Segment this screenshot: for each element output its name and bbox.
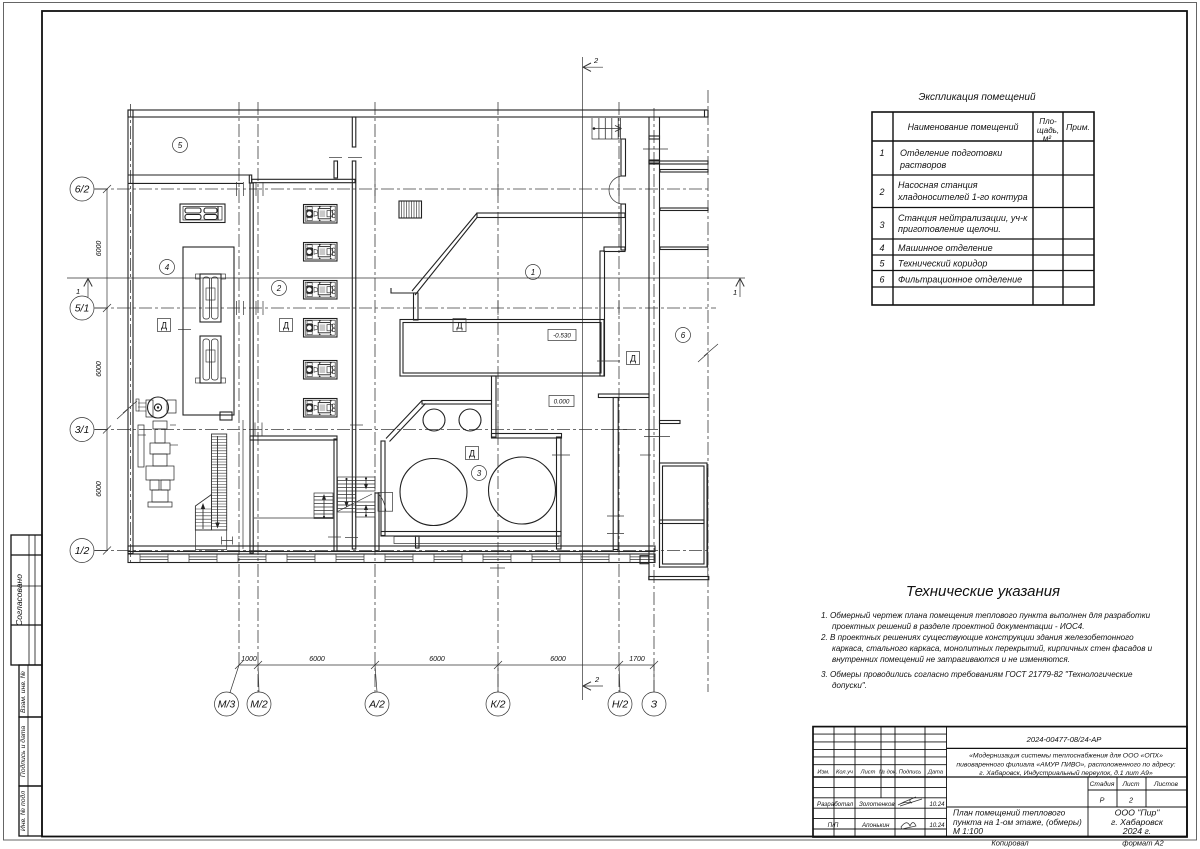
svg-text:Отделение подготовки: Отделение подготовки <box>900 148 1002 158</box>
svg-text:6000: 6000 <box>96 361 103 377</box>
svg-text:2. В проектных решениях сущест: 2. В проектных решениях существующие кон… <box>820 633 1134 642</box>
svg-text:М/3: М/3 <box>218 699 236 711</box>
svg-text:Согласовано: Согласовано <box>14 574 24 626</box>
svg-text:Лист: Лист <box>860 770 876 776</box>
svg-text:6000: 6000 <box>96 481 103 497</box>
svg-text:3/1: 3/1 <box>75 424 90 436</box>
svg-text:Листов: Листов <box>1153 781 1179 788</box>
svg-text:М 1:100: М 1:100 <box>953 826 983 836</box>
svg-text:каркаса, стального каркаса, мо: каркаса, стального каркаса, монолитных п… <box>832 644 1153 653</box>
svg-text:3: 3 <box>477 469 482 478</box>
svg-text:Д: Д <box>283 321 289 331</box>
svg-text:2024 г.: 2024 г. <box>1122 826 1151 836</box>
svg-text:6000: 6000 <box>550 656 566 663</box>
svg-text:10.24: 10.24 <box>929 802 945 808</box>
svg-text:Разработал: Разработал <box>817 801 854 808</box>
svg-text:1: 1 <box>733 288 737 297</box>
svg-text:Стадия: Стадия <box>1090 780 1115 788</box>
svg-text:Золотенков: Золотенков <box>859 801 895 808</box>
svg-text:«Модернизация системы теплосна: «Модернизация системы теплоснабжения для… <box>969 752 1163 760</box>
svg-text:М/2: М/2 <box>250 699 268 711</box>
svg-text:-0.530: -0.530 <box>553 333 571 340</box>
svg-text:А/2: А/2 <box>368 699 385 711</box>
svg-text:Наименование помещений: Наименование помещений <box>908 122 1019 132</box>
svg-text:Д: Д <box>469 449 475 459</box>
svg-text:6000: 6000 <box>429 656 445 663</box>
svg-text:Р: Р <box>1100 796 1105 805</box>
svg-text:пивоваренного филиала «АМУР ПИ: пивоваренного филиала «АМУР ПИВО», распо… <box>956 761 1175 769</box>
svg-text:5: 5 <box>178 141 183 150</box>
svg-text:0.000: 0.000 <box>554 399 570 406</box>
svg-text:План помещений теплового: План помещений теплового <box>953 808 1066 818</box>
svg-text:проектных решений в разделе пр: проектных решений в разделе проектной до… <box>832 622 1085 631</box>
svg-text:Дата: Дата <box>927 770 943 776</box>
svg-text:6000: 6000 <box>96 241 103 257</box>
svg-text:Д: Д <box>456 321 462 331</box>
svg-text:Апонькин: Апонькин <box>861 822 890 829</box>
svg-text:Кол.уч: Кол.уч <box>836 770 853 776</box>
svg-text:3. Обмеры проводились согласно: 3. Обмеры проводились согласно требовани… <box>821 670 1133 679</box>
svg-text:Технический коридор: Технический коридор <box>898 259 987 269</box>
svg-text:растворов: растворов <box>899 160 947 170</box>
svg-text:ООО "Пир": ООО "Пир" <box>1115 808 1161 818</box>
svg-text:1: 1 <box>879 148 884 158</box>
svg-text:4: 4 <box>165 263 170 272</box>
svg-text:3: 3 <box>879 220 884 230</box>
svg-text:6: 6 <box>879 275 884 285</box>
svg-text:хладоносителей 1-го контура: хладоносителей 1-го контура <box>897 192 1028 202</box>
svg-text:Станция нейтрализации, уч-к: Станция нейтрализации, уч-к <box>898 213 1028 223</box>
svg-text:1700: 1700 <box>629 656 645 663</box>
svg-text:Подпись и дата: Подпись и дата <box>19 726 27 778</box>
svg-text:1. Обмерный чертеж плана помещ: 1. Обмерный чертеж плана помещения тепло… <box>821 611 1151 620</box>
svg-text:П/П: П/П <box>828 822 839 829</box>
svg-text:формат А2: формат А2 <box>1122 839 1164 848</box>
svg-text:Насосная станция: Насосная станция <box>898 180 978 190</box>
svg-text:1: 1 <box>531 268 535 277</box>
svg-text:З: З <box>651 699 658 711</box>
svg-text:4: 4 <box>879 243 884 253</box>
svg-text:2: 2 <box>878 187 884 197</box>
svg-text:Технические указания: Технические указания <box>906 583 1060 600</box>
svg-text:№ док.: № док. <box>879 770 897 776</box>
svg-text:2: 2 <box>1128 796 1133 805</box>
svg-text:Копировал: Копировал <box>991 839 1029 848</box>
svg-text:6000: 6000 <box>309 656 325 663</box>
svg-text:Лист: Лист <box>1122 781 1140 788</box>
svg-text:м²: м² <box>1043 134 1051 143</box>
svg-text:К/2: К/2 <box>491 699 506 711</box>
svg-text:Изм.: Изм. <box>817 770 829 776</box>
svg-text:10.24: 10.24 <box>929 823 945 829</box>
svg-text:г. Хабаровск, Индустриальный п: г. Хабаровск, Индустриальный переулок, д… <box>979 769 1153 777</box>
svg-text:5/1: 5/1 <box>75 303 90 315</box>
svg-text:допуски".: допуски". <box>832 681 867 690</box>
svg-text:Прим.: Прим. <box>1066 122 1090 132</box>
svg-text:1000: 1000 <box>241 656 257 663</box>
svg-text:Инв. № подл: Инв. № подл <box>19 791 27 831</box>
svg-text:Д: Д <box>630 354 636 364</box>
svg-text:Машинное отделение: Машинное отделение <box>898 243 993 253</box>
svg-text:6: 6 <box>681 331 686 340</box>
svg-text:2024-00477-08/24-АР: 2024-00477-08/24-АР <box>1026 735 1103 744</box>
svg-text:2: 2 <box>594 675 600 684</box>
svg-text:1: 1 <box>76 287 80 296</box>
svg-text:1/2: 1/2 <box>75 545 90 557</box>
svg-text:внутренних помещений не затраг: внутренних помещений не затрагиваются и … <box>832 655 1070 664</box>
svg-text:Экспликация помещений: Экспликация помещений <box>918 92 1036 103</box>
svg-text:приготовление щелочи.: приготовление щелочи. <box>898 224 1001 234</box>
svg-text:Подпись: Подпись <box>899 770 922 776</box>
svg-text:Взам. инв. №: Взам. инв. № <box>20 671 27 713</box>
svg-text:Пло-: Пло- <box>1039 117 1057 126</box>
svg-text:Д: Д <box>161 321 167 331</box>
svg-text:6/2: 6/2 <box>75 184 90 196</box>
svg-text:Н/2: Н/2 <box>612 699 629 711</box>
svg-text:2: 2 <box>593 56 599 65</box>
svg-text:2: 2 <box>276 284 282 293</box>
svg-text:Фильтрационное отделение: Фильтрационное отделение <box>898 275 1022 285</box>
